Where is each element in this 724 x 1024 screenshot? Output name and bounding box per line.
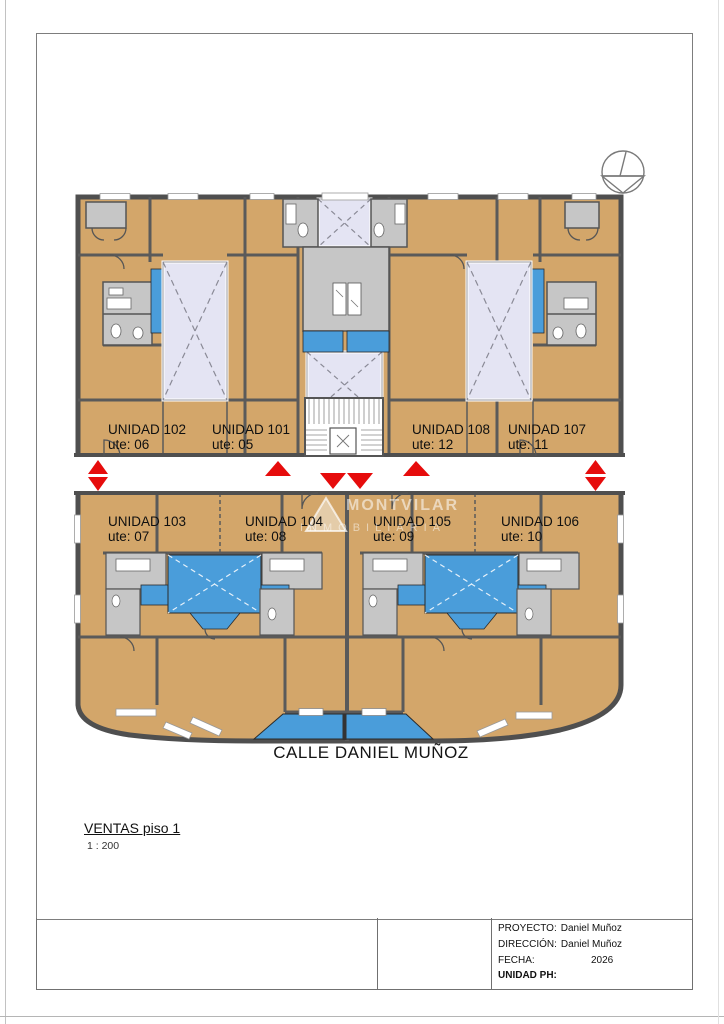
unit-name: UNIDAD 101 [212,422,290,437]
watermark-brand: MONTVILAR [346,497,459,515]
unit-ute: ute: 11 [508,437,586,452]
unit-label-103: UNIDAD 103 ute: 07 [108,514,186,544]
title-block-unit-row: UNIDAD PH: [498,969,557,982]
unit-ute: ute: 07 [108,529,186,544]
title-block: PROYECTO:Daniel Muñoz DIRECCIÓN:Daniel M… [36,918,693,990]
project-value: Daniel Muñoz [561,923,622,934]
title-block-address-row: DIRECCIÓN:Daniel Muñoz [498,938,622,951]
unit-label-107: UNIDAD 107 ute: 11 [508,422,586,452]
project-label: PROYECTO: [498,923,557,934]
address-value: Daniel Muñoz [561,939,622,950]
unit-label-101: UNIDAD 101 ute: 05 [212,422,290,452]
title-block-date-row: FECHA:2026 [498,954,535,967]
sheet-scale: 1 : 200 [87,840,119,852]
page-edge-left [5,0,6,1024]
date-value: 2026 [591,954,613,967]
drawing-frame [36,33,693,920]
watermark-subtitle: INMOBILIARIA [300,522,446,534]
page-edge-right [718,0,719,1024]
date-label: FECHA: [498,955,535,966]
unit-ph-label: UNIDAD PH: [498,970,557,981]
unit-ute: ute: 10 [501,529,579,544]
title-block-info-cell: PROYECTO:Daniel Muñoz DIRECCIÓN:Daniel M… [491,918,691,989]
title-block-project-row: PROYECTO:Daniel Muñoz [498,922,622,935]
address-label: DIRECCIÓN: [498,939,557,950]
unit-name: UNIDAD 103 [108,514,186,529]
unit-name: UNIDAD 107 [508,422,586,437]
page-edge-bottom [0,1016,724,1017]
unit-ute: ute: 12 [412,437,490,452]
street-label: CALLE DANIEL MUÑOZ [221,743,521,763]
unit-label-102: UNIDAD 102 ute: 06 [108,422,186,452]
sheet-title: VENTAS piso 1 [84,820,180,836]
unit-label-108: UNIDAD 108 ute: 12 [412,422,490,452]
unit-name: UNIDAD 102 [108,422,186,437]
unit-name: UNIDAD 106 [501,514,579,529]
title-block-divider [377,918,378,989]
unit-label-106: UNIDAD 106 ute: 10 [501,514,579,544]
unit-name: UNIDAD 108 [412,422,490,437]
unit-ute: ute: 06 [108,437,186,452]
unit-ute: ute: 05 [212,437,290,452]
